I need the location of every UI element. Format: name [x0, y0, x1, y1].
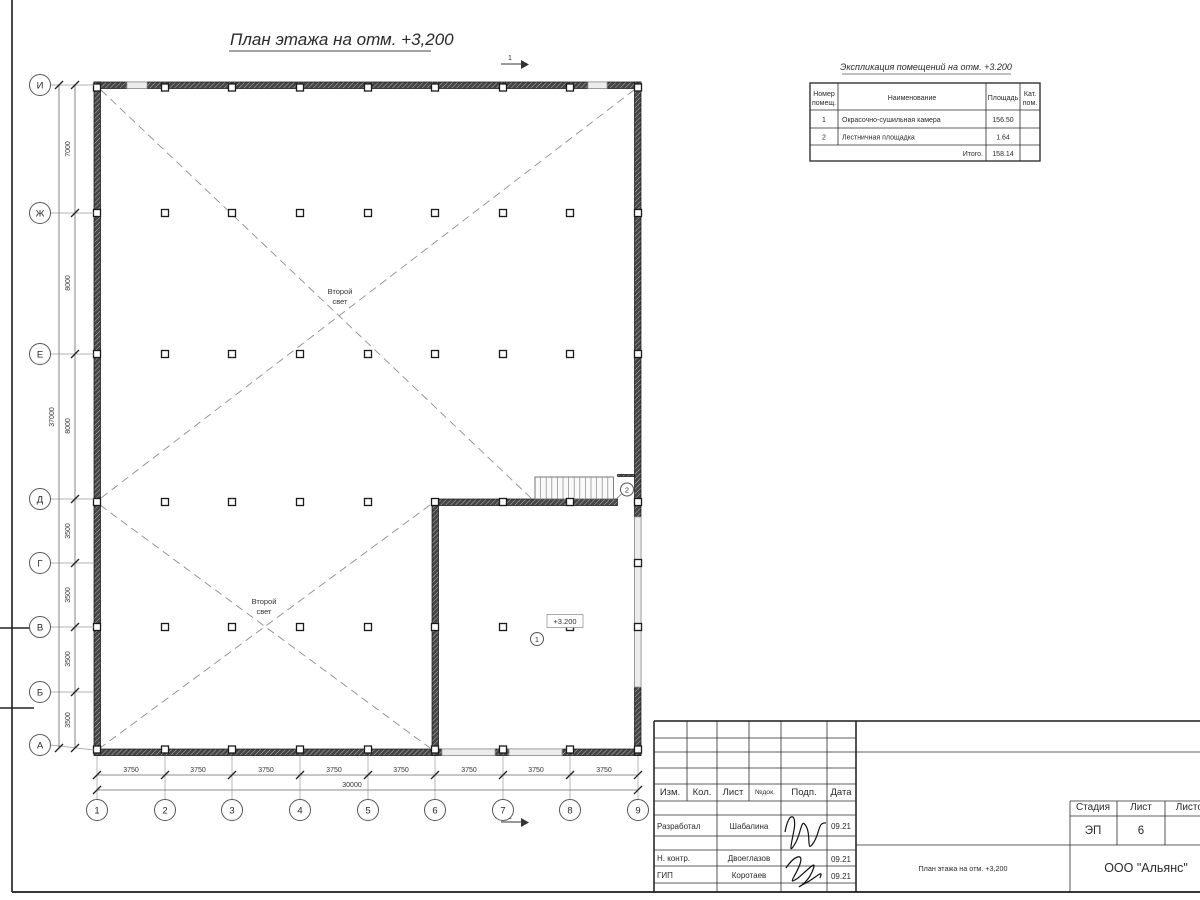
- table-total-value: 158.14: [992, 151, 1014, 158]
- dim-left: 8000: [65, 418, 72, 434]
- axis-grid-left: 7000 8000 8000 3500 3500 3500 3500 37000…: [30, 75, 95, 756]
- columns: [94, 84, 642, 753]
- section-arrow-icon: [521, 818, 529, 827]
- axis-label: 3: [229, 805, 234, 816]
- tb-org-name: ООО "Альянс": [1104, 861, 1188, 875]
- tb-role: Разработал: [657, 822, 701, 831]
- dim-bottom: 3750: [461, 767, 477, 774]
- opening-bottom-1: [442, 749, 495, 756]
- second-light-label: Второй: [252, 597, 277, 606]
- opening-top-left: [127, 82, 147, 89]
- section-arrow-icon: [521, 60, 529, 69]
- axis-label: Д: [37, 494, 44, 505]
- axis-grid-bottom: 3750 3750 3750 3750 3750 3750 3750 3750 …: [87, 756, 649, 821]
- axis-label: 6: [432, 805, 437, 816]
- title-block: Изм. Кол. Лист №док. Подп. Дата Разработ…: [654, 721, 1200, 892]
- dim-bottom: 3750: [393, 767, 409, 774]
- axis-label: 8: [567, 805, 572, 816]
- tb-header-kol: Кол.: [693, 787, 712, 798]
- axis-label: И: [37, 80, 44, 91]
- dim-left: 3500: [65, 712, 72, 728]
- tb-sheets-label: Листов: [1176, 802, 1200, 813]
- room-tag-2-label: 2: [625, 485, 629, 494]
- col-header-number: помещ.: [812, 100, 836, 107]
- dim-bottom: 3750: [528, 767, 544, 774]
- walls: [94, 82, 641, 756]
- axis-label: Г: [37, 558, 42, 569]
- dim-bottom: 3750: [190, 767, 206, 774]
- wall-landing-stub: [618, 475, 635, 477]
- dim-left: 7000: [65, 141, 72, 157]
- tb-date: 09.21: [831, 855, 852, 864]
- plan-title: План этажа на отм. +3,200: [229, 30, 454, 51]
- axis-label: 9: [635, 805, 640, 816]
- axis-label: 2: [162, 805, 167, 816]
- col-header-cat: Кат.: [1024, 91, 1036, 98]
- table-total-label: Итого.: [963, 151, 983, 158]
- table-row-name: Окрасочно-сушильная камера: [842, 117, 941, 124]
- room-labels: Второй свет Второй свет +3.200 1: [252, 287, 583, 646]
- axis-label: Е: [37, 349, 43, 360]
- tb-role: Н. контр.: [657, 854, 690, 863]
- axis-label: 4: [297, 805, 302, 816]
- col-header-cat: пом.: [1023, 100, 1037, 107]
- dim-bottom: 3750: [258, 767, 274, 774]
- tb-date: 09.21: [831, 822, 852, 831]
- dim-left: 8000: [65, 275, 72, 291]
- second-light-label: свет: [332, 297, 348, 306]
- tb-date: 09.21: [831, 872, 852, 881]
- tb-stage-value: ЭП: [1085, 825, 1102, 837]
- signature: [785, 817, 826, 849]
- elevation-mark: +3.200: [553, 617, 576, 626]
- axis-label: 7: [500, 805, 505, 816]
- second-light-label: Второй: [328, 287, 353, 296]
- page-title: План этажа на отм. +3,200: [230, 30, 454, 49]
- tb-name: Шабалина: [730, 822, 769, 831]
- signature: [786, 857, 821, 887]
- dim-left: 3500: [65, 651, 72, 667]
- table-row-num: 1: [822, 117, 826, 124]
- section-mark-top: 1: [501, 55, 529, 69]
- tb-sheet-value: 6: [1138, 825, 1144, 837]
- stairs: 2: [535, 477, 634, 503]
- tb-name: Двоеглазов: [728, 854, 771, 863]
- second-light-label: свет: [256, 607, 272, 616]
- table-row-area: 1.64: [996, 135, 1010, 142]
- tb-stage-label: Стадия: [1076, 802, 1110, 813]
- section-number: 1: [508, 55, 512, 62]
- tb-name: Коротаев: [732, 871, 767, 880]
- col-header-area: Площадь: [988, 95, 1019, 102]
- room-schedule: Экспликация помещений на отм. +3.200 Ном…: [810, 62, 1040, 161]
- wall-left: [94, 82, 101, 756]
- dim-left: 3500: [65, 523, 72, 539]
- table-row-name: Лестничная площадка: [842, 135, 915, 142]
- floor-plan-canvas: План этажа на отм. +3,200 1 1: [0, 0, 1200, 900]
- tb-role: ГИП: [657, 871, 673, 880]
- opening-bottom-2: [509, 749, 562, 756]
- dim-left-total: 37000: [49, 407, 56, 427]
- opening-top-right: [588, 82, 607, 89]
- tb-header-izm: Изм.: [660, 787, 680, 798]
- axis-label: 1: [94, 805, 99, 816]
- dim-bottom: 3750: [596, 767, 612, 774]
- dim-bottom: 3750: [123, 767, 139, 774]
- tb-sheet-label: Лист: [1130, 802, 1152, 813]
- axis-label: А: [37, 740, 44, 751]
- dim-left: 3500: [65, 587, 72, 603]
- axis-label: Б: [37, 687, 43, 698]
- room-schedule-title: Экспликация помещений на отм. +3.200: [840, 62, 1012, 72]
- col-header-name: Наименование: [888, 95, 937, 102]
- wall-openings: [127, 82, 641, 756]
- second-light-diagonals: [100, 90, 634, 748]
- tb-header-ndok: №док.: [755, 789, 775, 796]
- axis-label: В: [37, 622, 43, 633]
- table-row-area: 156.50: [992, 117, 1014, 124]
- opening-right: [635, 517, 642, 687]
- room-tag-1-label: 1: [535, 635, 539, 644]
- dim-bottom: 3750: [326, 767, 342, 774]
- drawing-sheet: План этажа на отм. +3,200 1 1: [0, 0, 1200, 900]
- wall-interior-horizontal: [432, 499, 618, 506]
- axis-label: 5: [365, 805, 370, 816]
- tb-header-data: Дата: [830, 787, 852, 798]
- tb-doc-name: План этажа на отм. +3,200: [918, 864, 1007, 873]
- dim-bottom-total: 30000: [342, 782, 362, 789]
- axis-label: Ж: [36, 208, 45, 219]
- col-header-number: Номер: [813, 91, 835, 98]
- table-row-num: 2: [822, 135, 826, 142]
- tb-header-list: Лист: [723, 787, 744, 798]
- tb-header-podp: Подп.: [791, 787, 816, 798]
